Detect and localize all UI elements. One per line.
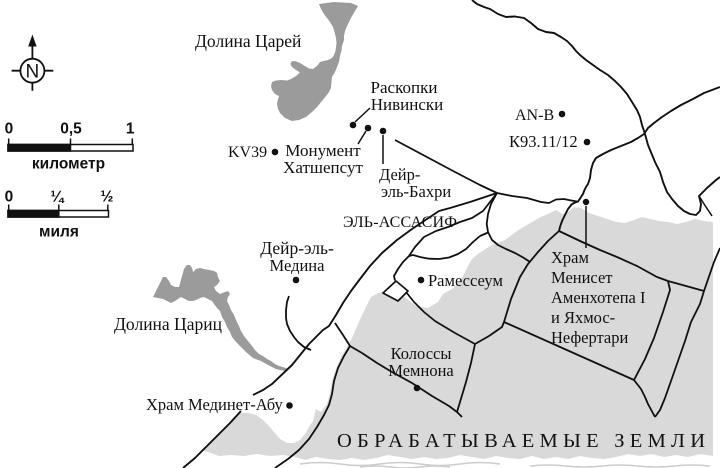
svg-text:Долина Цариц: Долина Цариц: [114, 314, 222, 334]
svg-text:Долина Царей: Долина Царей: [195, 31, 301, 51]
svg-text:Медина: Медина: [270, 256, 326, 275]
svg-text:и Яхмос-: и Яхмос-: [551, 308, 615, 327]
svg-text:Нивински: Нивински: [371, 95, 444, 114]
svg-text:Рамессеум: Рамессеум: [428, 271, 503, 290]
svg-text:Дейр-эль-: Дейр-эль-: [260, 238, 334, 258]
svg-text:Менисет: Менисет: [551, 268, 613, 287]
svg-text:ОБРАБАТЫВАЕМЫЕ ЗЕМЛИ: ОБРАБАТЫВАЕМЫЕ ЗЕМЛИ: [337, 430, 710, 452]
svg-text:0,5: 0,5: [60, 121, 82, 138]
svg-text:Хатшепсут: Хатшепсут: [283, 158, 363, 177]
svg-text:AN-B: AN-B: [515, 107, 554, 124]
svg-text:Храм Мединет-Абу: Храм Мединет-Абу: [146, 395, 284, 414]
svg-text:Нефертари: Нефертари: [551, 328, 628, 347]
svg-text:0: 0: [5, 121, 14, 138]
svg-text:Мемнона: Мемнона: [388, 361, 454, 380]
svg-text:0: 0: [5, 189, 14, 206]
svg-text:N: N: [26, 62, 40, 83]
svg-text:Аменхотепа I: Аменхотепа I: [551, 288, 645, 307]
svg-text:миля: миля: [39, 224, 79, 241]
svg-text:ЭЛЬ-АССАСИФ: ЭЛЬ-АССАСИФ: [343, 214, 457, 231]
svg-text:Храм: Храм: [551, 248, 589, 267]
svg-text:К93.11/12: К93.11/12: [509, 132, 578, 151]
svg-text:1: 1: [126, 121, 135, 138]
svg-text:¼: ¼: [51, 189, 65, 206]
svg-text:эль-Бахри: эль-Бахри: [381, 182, 451, 201]
svg-text:½: ½: [101, 189, 114, 206]
svg-text:километр: километр: [32, 156, 105, 173]
svg-text:KV39: KV39: [228, 144, 267, 161]
